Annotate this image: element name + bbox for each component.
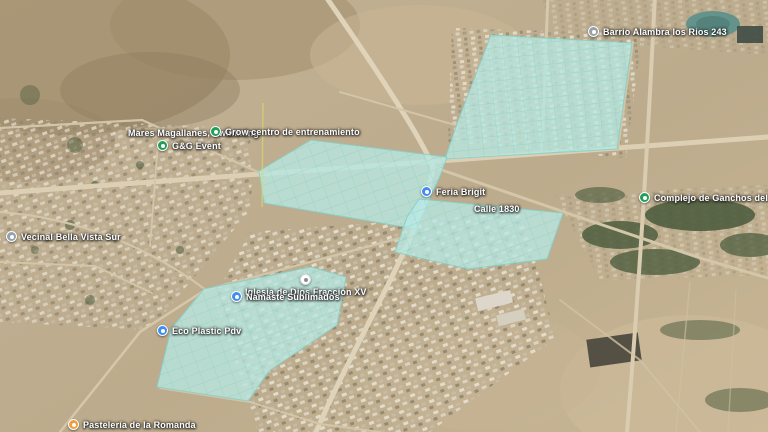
church-poi-icon <box>300 274 311 285</box>
store-poi-icon <box>157 325 168 336</box>
highlight-overlay-layer <box>0 0 768 432</box>
place-barrio-alambra-los-rios[interactable]: Barrio Alambra los Rios 243 <box>588 26 727 37</box>
highlight-zone-northeast[interactable] <box>445 35 632 159</box>
place-label-text: Vecinal Bella Vista Sur <box>21 232 121 242</box>
place-feria-brigit[interactable]: Feria Brigit <box>421 186 485 197</box>
place-label-text: Barrio Alambra los Rios 243 <box>603 27 727 37</box>
store-poi-icon <box>421 186 432 197</box>
place-vecinal-bella-vista-sur[interactable]: Vecinal Bella Vista Sur <box>6 231 121 242</box>
generic-poi-icon <box>588 26 599 37</box>
place-grow-centro-de-entrenamiento[interactable]: Grow centro de entrenamiento <box>210 126 360 137</box>
place-calle-1830[interactable]: Calle 1830 <box>474 204 520 214</box>
store-poi-icon <box>231 291 242 302</box>
place-label-text: Grow centro de entrenamiento <box>225 127 360 137</box>
park-poi-icon <box>157 140 168 151</box>
place-gg-event[interactable]: G&G Event <box>157 140 221 151</box>
place-complejo-de-ganchos-del-mar[interactable]: Complejo de Ganchos del Mar <box>639 192 768 203</box>
place-pasteleria-de-la-romanda[interactable]: Pastelería de la Romanda <box>68 419 196 430</box>
place-label-text: Pastelería de la Romanda <box>83 420 196 430</box>
place-label-text: G&G Event <box>172 141 221 151</box>
place-label-text: Calle 1830 <box>474 204 520 214</box>
map-canvas[interactable]: Barrio Alambra los Rios 243Mares Magalla… <box>0 0 768 432</box>
food-poi-icon <box>68 419 79 430</box>
place-label-text: Eco Plastic Pdv <box>172 326 241 336</box>
place-namaste-sublimados[interactable]: Namaste Sublimados <box>231 291 340 302</box>
generic-poi-icon <box>6 231 17 242</box>
park-poi-icon <box>210 126 221 137</box>
place-label-text: Feria Brigit <box>436 187 485 197</box>
park-poi-icon <box>639 192 650 203</box>
place-eco-plastic-pdv[interactable]: Eco Plastic Pdv <box>157 325 241 336</box>
place-label-text: Namaste Sublimados <box>246 292 340 302</box>
zone-boundary-line <box>262 103 263 207</box>
place-label-text: Complejo de Ganchos del Mar <box>654 193 768 203</box>
